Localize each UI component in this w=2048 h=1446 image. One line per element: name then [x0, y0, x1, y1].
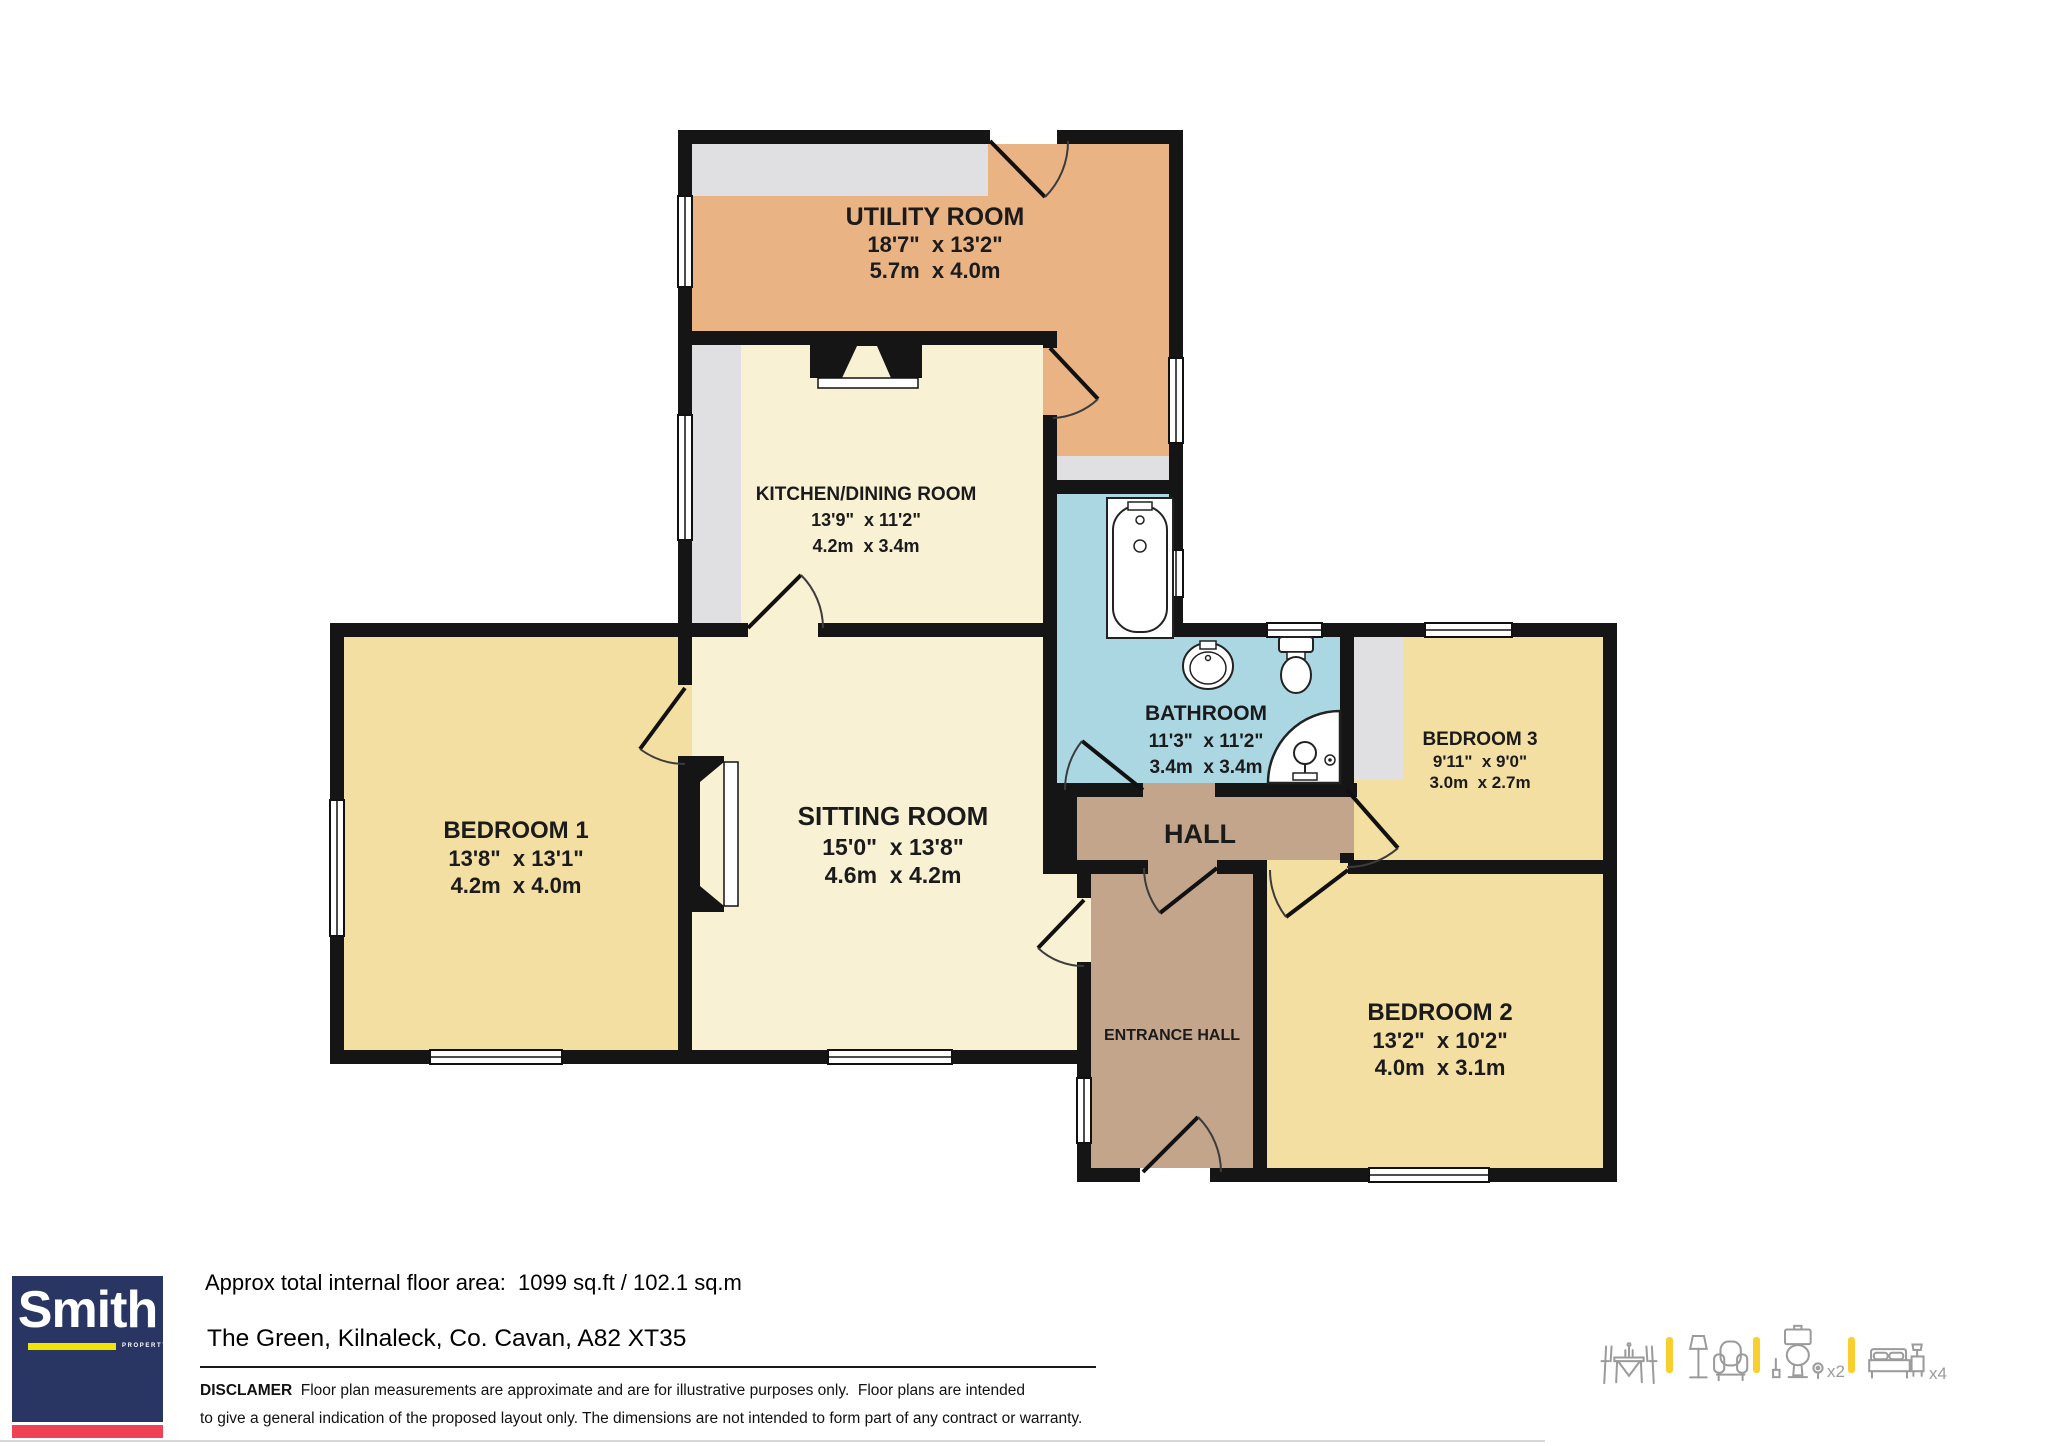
room-dims-imperial: 13'9" x 11'2"	[811, 510, 921, 530]
room-dims-metric: 4.2m x 3.4m	[812, 536, 919, 556]
icon-separator	[1753, 1337, 1760, 1373]
bed-icon	[1860, 1334, 1930, 1390]
room-dims-metric: 3.4m x 3.4m	[1149, 757, 1262, 778]
fireplace-sitting	[678, 756, 738, 912]
smith-logo: Smith PROPERTY	[12, 1276, 163, 1438]
logo-red-stripe	[12, 1425, 163, 1438]
disclaimer-label: DISCLAMER	[200, 1382, 292, 1399]
room-label: BEDROOM 1	[443, 817, 588, 844]
room-dims-metric: 4.2m x 4.0m	[451, 873, 582, 898]
bathtub	[1107, 498, 1173, 638]
room-label: UTILITY ROOM	[846, 203, 1025, 231]
address-underline	[200, 1366, 1096, 1368]
utility-arm-counter	[1057, 456, 1169, 480]
room-dims-imperial: 9'11" x 9'0"	[1433, 752, 1527, 771]
lounge-icon	[1680, 1328, 1750, 1390]
room-dims-imperial: 13'8" x 13'1"	[448, 846, 583, 871]
room-dims-metric: 3.0m x 2.7m	[1429, 773, 1530, 792]
room-label: ENTRANCE HALL	[1104, 1027, 1240, 1044]
icon-separator	[1848, 1337, 1855, 1373]
logo-underline	[28, 1343, 116, 1350]
disclaimer-line2: to give a general indication of the prop…	[200, 1410, 1082, 1428]
room-dims-imperial: 13'2" x 10'2"	[1372, 1028, 1507, 1053]
room-label: BEDROOM 3	[1422, 729, 1537, 750]
address-text: The Green, Kilnaleck, Co. Cavan, A82 XT3…	[207, 1325, 686, 1353]
room-dims-imperial: 11'3" x 11'2"	[1149, 731, 1264, 752]
room-dims-imperial: 15'0" x 13'8"	[822, 834, 963, 860]
utility-counter	[692, 144, 988, 196]
room-label: KITCHEN/DINING ROOM	[756, 484, 977, 505]
bedroom3-wardrobe	[1352, 637, 1403, 780]
room-label: BEDROOM 2	[1367, 999, 1512, 1026]
logo-subtitle: PROPERTY	[122, 1343, 168, 1349]
dining-table-icon	[1596, 1328, 1662, 1398]
room-dims-imperial: 18'7" x 13'2"	[867, 232, 1002, 257]
toilet-count: x2	[1827, 1362, 1845, 1382]
floorplan: UTILITY ROOM 18'7" x 13'2" 5.7m x 4.0m K…	[0, 0, 2048, 1260]
room-label: SITTING ROOM	[798, 801, 989, 831]
floor-area-text: Approx total internal floor area: 1099 s…	[205, 1270, 742, 1296]
disclaimer-line1: DISCLAMER Floor plan measurements are ap…	[200, 1382, 1025, 1400]
icon-separator	[1666, 1337, 1673, 1373]
hall-opening	[1148, 860, 1217, 874]
room-label: HALL	[1164, 819, 1236, 849]
kitchen-counter	[692, 345, 741, 623]
logo-name: Smith	[12, 1280, 163, 1340]
floorplan-page: UTILITY ROOM 18'7" x 13'2" 5.7m x 4.0m K…	[0, 0, 2048, 1446]
room-dims-metric: 4.0m x 3.1m	[1375, 1055, 1506, 1080]
bottom-divider	[0, 1440, 1545, 1442]
toilet	[1279, 637, 1313, 693]
toilet-icon	[1763, 1322, 1829, 1392]
room-dims-metric: 4.6m x 4.2m	[825, 862, 962, 888]
fireplace-kitchen	[810, 337, 922, 388]
room-entrance-floor	[1091, 874, 1253, 1168]
room-label: BATHROOM	[1145, 702, 1267, 725]
room-dims-metric: 5.7m x 4.0m	[870, 258, 1001, 283]
bed-count: x4	[1929, 1364, 1947, 1384]
